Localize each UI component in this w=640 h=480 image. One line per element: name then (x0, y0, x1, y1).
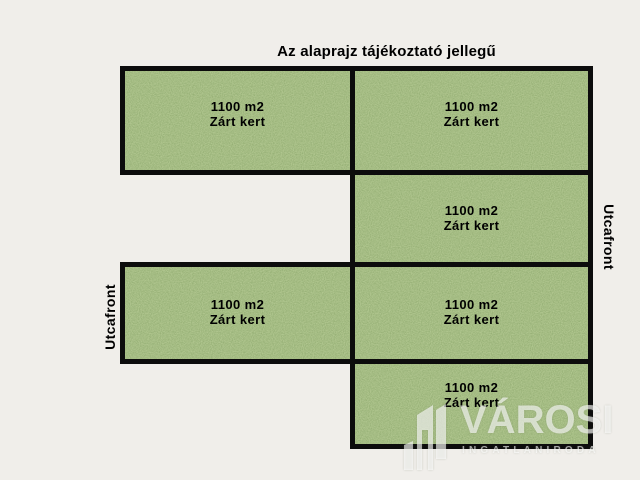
plot-area: 1100 m2 (445, 298, 498, 313)
street-label-right: Utcafront (600, 197, 618, 277)
plot-label: 1100 m2 Zárt kert (355, 267, 588, 359)
plot-kind: Zárt kert (210, 313, 266, 328)
plot-area: 1100 m2 (211, 100, 264, 115)
plot-label: 1100 m2 Zárt kert (125, 65, 350, 164)
watermark-tagline: INGATLANIRODA (462, 445, 600, 456)
plot-middle-left: 1100 m2 Zárt kert (120, 262, 355, 364)
plot-top-right: 1100 m2 Zárt kert (350, 66, 593, 175)
plot-top-left: 1100 m2 Zárt kert (120, 66, 355, 175)
watermark: VÁROSI INGATLANIRODA (403, 396, 623, 474)
plot-area: 1100 m2 (445, 381, 498, 396)
plot-area: 1100 m2 (445, 204, 498, 219)
street-label-left: Utcafront (101, 277, 119, 357)
watermark-brand: VÁROSI (460, 400, 613, 440)
plot-kind: Zárt kert (444, 219, 500, 234)
plot-middle-right-2: 1100 m2 Zárt kert (350, 262, 593, 364)
plot-label: 1100 m2 Zárt kert (355, 65, 588, 164)
plot-kind: Zárt kert (210, 115, 266, 130)
site-plan: Az alaprajz tájékoztató jellegű 1100 m2 … (0, 0, 640, 480)
page-title: Az alaprajz tájékoztató jellegű (150, 43, 623, 60)
plot-kind: Zárt kert (444, 115, 500, 130)
plot-middle-right: 1100 m2 Zárt kert (350, 170, 593, 267)
plot-label: 1100 m2 Zárt kert (125, 267, 350, 359)
plot-area: 1100 m2 (445, 100, 498, 115)
building-icon (403, 398, 450, 470)
plot-label: 1100 m2 Zárt kert (355, 175, 588, 262)
plot-kind: Zárt kert (444, 313, 500, 328)
plot-area: 1100 m2 (211, 298, 264, 313)
